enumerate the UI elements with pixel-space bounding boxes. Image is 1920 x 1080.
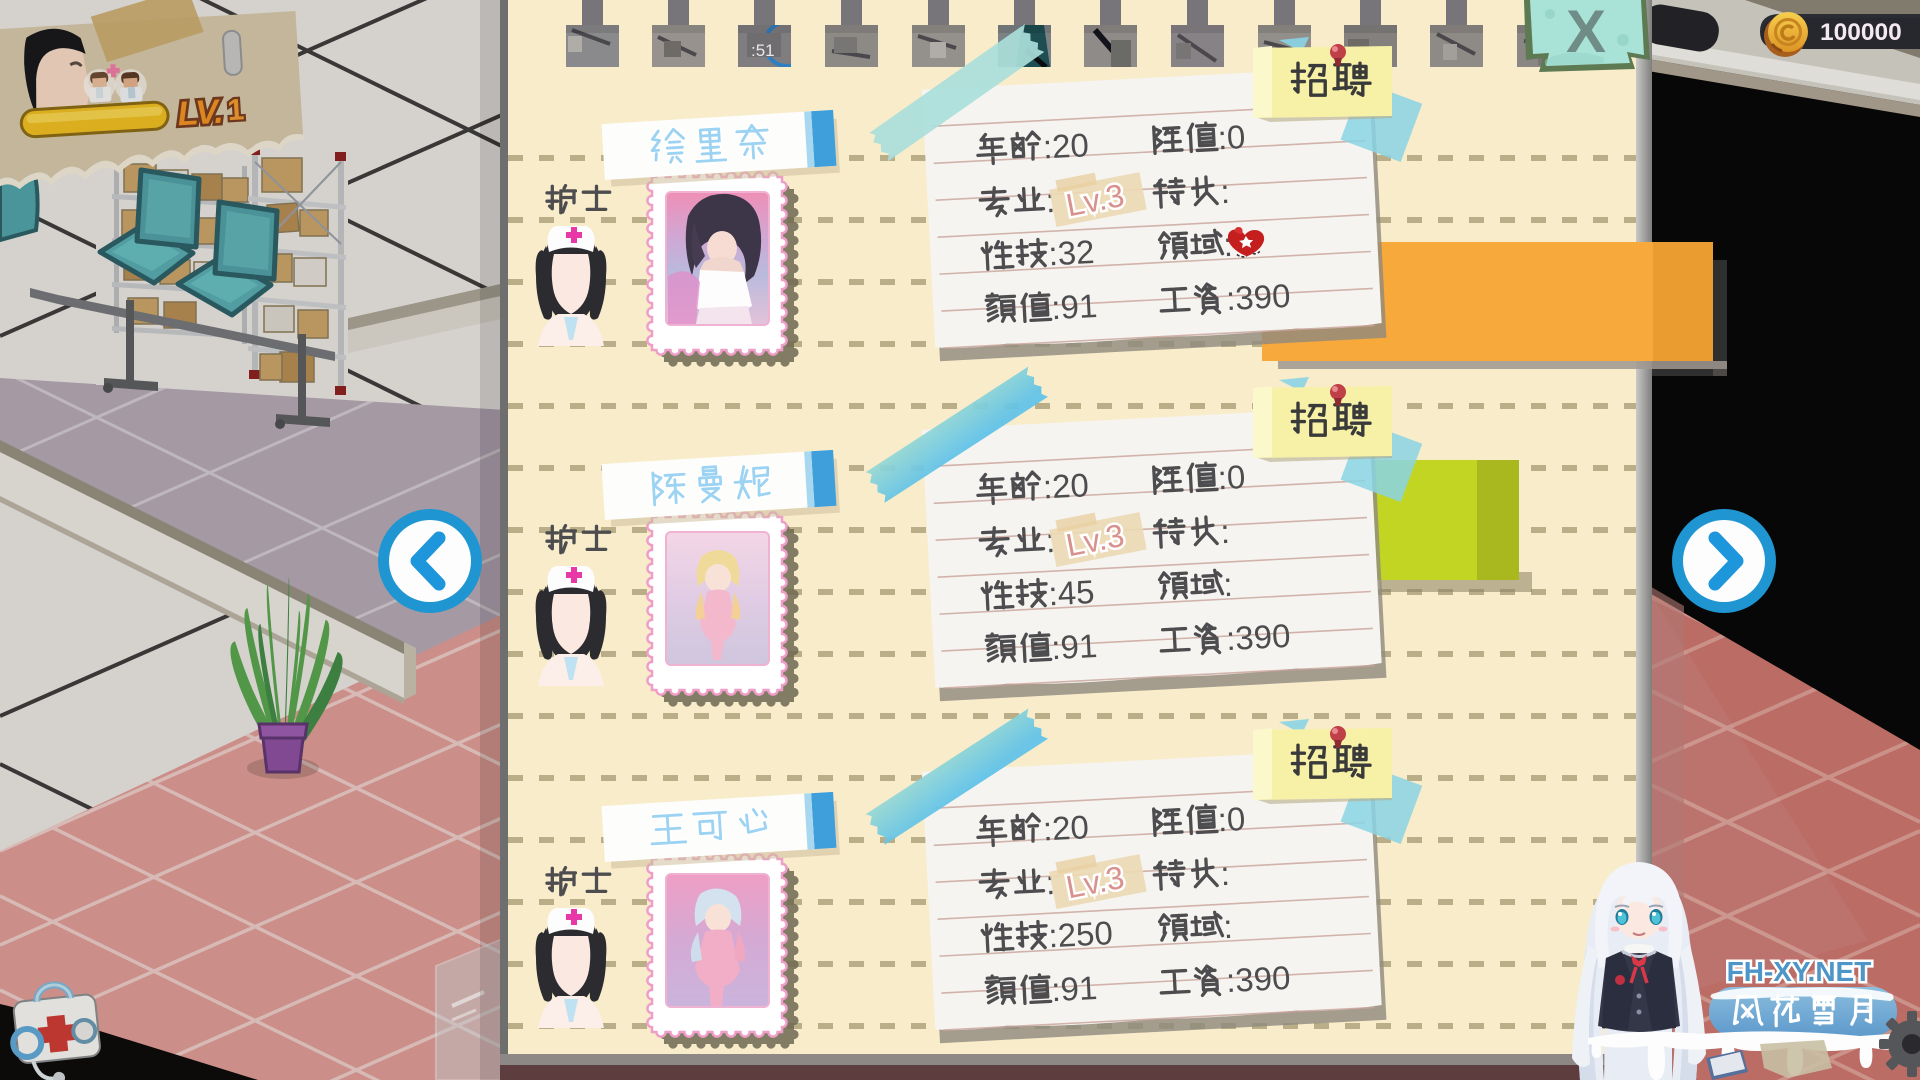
svg-text:X: X xyxy=(1566,0,1606,65)
svg-text::: : xyxy=(1222,908,1233,945)
svg-text:FH-XY.NET: FH-XY.NET xyxy=(1727,956,1872,987)
svg-text::: : xyxy=(1220,513,1231,550)
svg-text::: : xyxy=(1220,173,1231,210)
svg-text::32: :32 xyxy=(1048,233,1096,272)
svg-text::91: :91 xyxy=(1050,627,1098,666)
svg-text::250: :250 xyxy=(1048,914,1114,954)
svg-text::91: :91 xyxy=(1050,969,1098,1008)
svg-text::20: :20 xyxy=(1042,466,1090,505)
svg-text::: : xyxy=(1220,855,1231,892)
svg-text::: : xyxy=(1222,566,1233,603)
svg-text::91: :91 xyxy=(1050,287,1098,326)
svg-text::51: :51 xyxy=(751,41,775,60)
svg-text::390: :390 xyxy=(1225,277,1291,317)
svg-text::390: :390 xyxy=(1225,617,1291,657)
svg-text::0: :0 xyxy=(1217,800,1246,838)
svg-text::45: :45 xyxy=(1048,573,1096,612)
svg-text::0: :0 xyxy=(1217,118,1246,156)
svg-text:100000: 100000 xyxy=(1820,19,1902,46)
svg-text::0: :0 xyxy=(1217,458,1246,496)
svg-text::20: :20 xyxy=(1042,808,1090,847)
svg-text::390: :390 xyxy=(1225,959,1291,999)
svg-text::20: :20 xyxy=(1042,126,1090,165)
